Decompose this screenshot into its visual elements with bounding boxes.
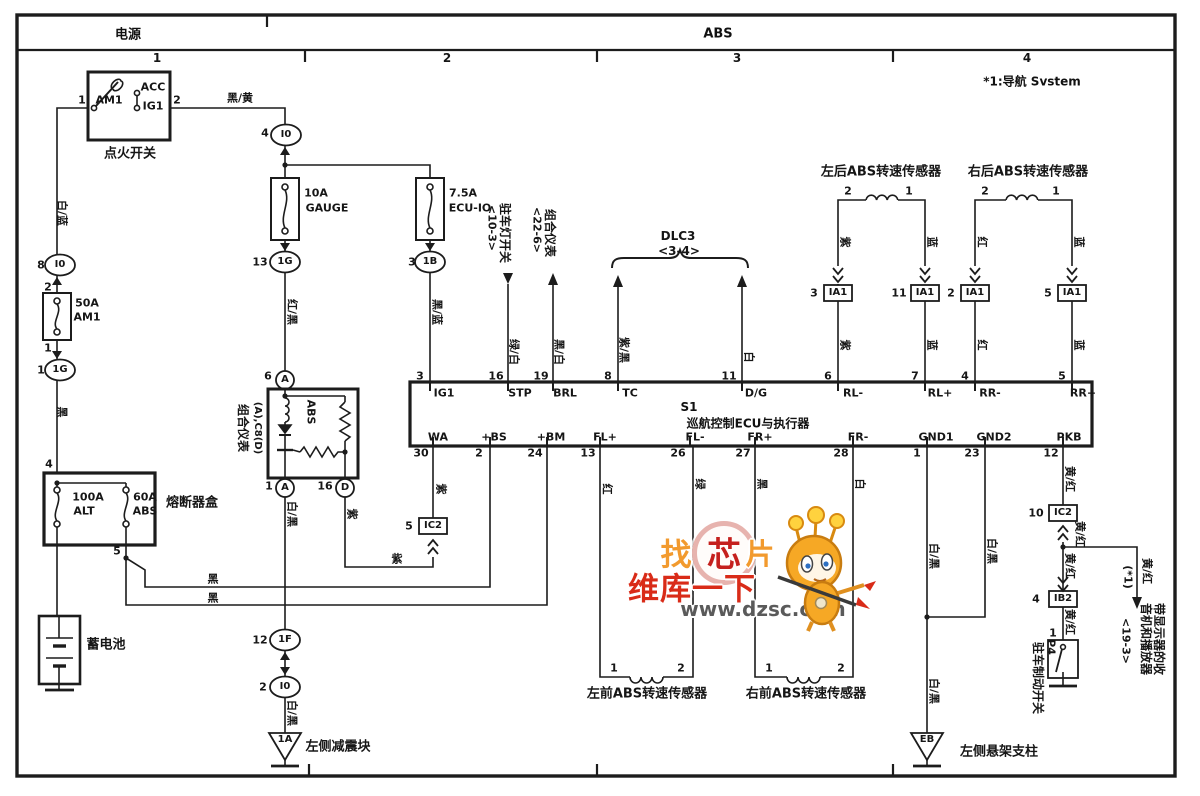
pin-number: 1	[44, 343, 52, 354]
wire-color-label: 白/蓝	[57, 200, 68, 226]
wire-color-label: 白	[744, 352, 755, 363]
pin-number: 1	[1049, 628, 1057, 639]
pin-number: 4	[261, 128, 269, 139]
connector-label: IB2	[1054, 594, 1072, 604]
pin-number: 2	[259, 682, 267, 693]
wire-color-label: 蓝	[1074, 237, 1085, 248]
wire-color-label: 白/黑	[287, 700, 298, 726]
pin-number: 23	[964, 448, 979, 459]
wire-color-label: 蓝	[1074, 340, 1085, 351]
pin-number: 5	[1044, 288, 1052, 299]
fuse-label: 50A	[75, 298, 99, 309]
wire-color-label: 蓝	[927, 340, 938, 351]
dest-label: 带显示器的收	[1153, 603, 1165, 675]
lamp-label: ABS	[306, 400, 317, 425]
column-number: 1	[153, 52, 161, 64]
dest-label: 组合仪表	[544, 209, 556, 257]
ecu-pin-label: WA	[428, 432, 448, 443]
ground-id: 1A	[278, 735, 293, 745]
connector-label: IA1	[916, 288, 934, 298]
pin-number: 12	[1043, 448, 1058, 459]
pin-number: 12	[252, 635, 267, 646]
wire-color-label: 红	[977, 340, 988, 351]
dest-ref: <3-4>	[658, 245, 700, 257]
pin-number: 30	[413, 448, 428, 459]
connector-label: IA1	[829, 288, 847, 298]
wire-color-label: 绿	[695, 479, 706, 490]
connector-label: D	[341, 483, 349, 493]
connector-label: I0	[281, 130, 292, 140]
pin-number: 2	[981, 186, 989, 197]
connector-label: A	[281, 483, 289, 493]
wire-color-label: 紫	[840, 237, 851, 248]
component-label: (A),C8(D)	[252, 402, 262, 454]
pin-number: 1	[78, 95, 86, 106]
system-section-title: ABS	[703, 27, 732, 42]
pin-number: 7	[911, 371, 919, 382]
pin-number: 3	[408, 257, 416, 268]
column-number: 4	[1023, 52, 1031, 64]
connector-label: 1B	[423, 257, 438, 267]
ecu-pin-label: D/G	[745, 388, 767, 399]
navigation-note: *1:导航 Svstem	[983, 73, 1081, 90]
component-label: 右前ABS转速传感器	[746, 688, 866, 701]
wire-color-label: 黄/红	[1065, 609, 1076, 635]
pin-number: 8	[37, 260, 45, 271]
pin-number: 1	[913, 448, 921, 459]
fuse-label: 7.5A	[449, 188, 477, 199]
wire-color-label: 黑	[57, 407, 68, 418]
wire-color-label: 红	[602, 484, 613, 495]
component-label: 左后ABS转速传感器	[821, 166, 941, 179]
power-section-title: 电源	[115, 24, 141, 43]
connector-label: I0	[55, 260, 66, 270]
dest-ref: <22-6>	[532, 207, 543, 253]
dest-label: 音机和播放器	[1140, 603, 1152, 675]
pin-number: 2	[677, 663, 685, 674]
ground-id: EB	[920, 735, 934, 745]
ecu-name: 巡航控制ECU与执行器	[687, 415, 810, 432]
wire-color-label: 黄/红	[1142, 558, 1153, 584]
wire-color-label: 黑/黄	[227, 93, 253, 104]
wire-color-label: 紫/黑	[619, 337, 630, 363]
fuse-label: AM1	[73, 312, 100, 323]
ecu-pin-label: RR-	[979, 388, 1001, 399]
component-label: 熔断器盒	[166, 497, 218, 510]
fuse-label: 60A	[133, 492, 157, 503]
pin-number: 10	[1028, 508, 1043, 519]
circuit-linework	[0, 0, 1200, 796]
pin-number: 1	[1052, 186, 1060, 197]
pin-number: 2	[173, 95, 181, 106]
column-number: 3	[733, 52, 741, 64]
ecu-pin-label: STP	[508, 388, 532, 399]
fuse-label: 100A	[72, 492, 103, 503]
pin-number: 28	[833, 448, 848, 459]
pin-number: 2	[44, 282, 52, 293]
fuse-label: ABS	[133, 506, 158, 517]
pin-number: 16	[317, 481, 332, 492]
wire-color-label: 紫	[436, 484, 447, 495]
component-label: 左侧减震块	[305, 741, 370, 754]
wire-color-label: 白/黑	[287, 501, 298, 527]
column-number: 2	[443, 52, 451, 64]
ecu-pin-label: GND1	[918, 432, 953, 443]
pin-number: 24	[527, 448, 542, 459]
pin-number: 26	[670, 448, 685, 459]
dest-label: 驻车灯开关	[499, 203, 511, 263]
component-label: 蓄电池	[86, 639, 125, 652]
wire-color-label: 红	[977, 237, 988, 248]
pin-number: 4	[1032, 594, 1040, 605]
note-ref: (*1)	[1123, 565, 1134, 588]
sensor-coil	[866, 195, 898, 200]
fuse-label: 10A	[304, 188, 328, 199]
pin-number: 16	[488, 371, 503, 382]
terminal-label: IG1	[143, 101, 164, 112]
connector-label: A	[281, 375, 289, 385]
wire-color-label: 白/黑	[929, 543, 940, 569]
ecu-pin-label: TC	[622, 388, 638, 399]
component-label: 组合仪表	[237, 404, 249, 452]
wire-color-label: 黑	[757, 479, 768, 490]
pin-number: 11	[891, 288, 906, 299]
pin-number: 19	[533, 371, 548, 382]
pin-number: 4	[961, 371, 969, 382]
ecu-pin-label: +BS	[481, 432, 507, 443]
pin-number: 6	[824, 371, 832, 382]
wire-color-label: 黄/红	[1065, 466, 1076, 492]
component-label: 点火开关	[104, 148, 156, 161]
ecu-pin-label: FL-	[685, 432, 704, 443]
component-id: P4	[1046, 639, 1057, 655]
connector-label: IC2	[1054, 508, 1072, 518]
connector-label: I0	[280, 682, 291, 692]
wire-color-label: 红/黑	[287, 299, 298, 325]
wire-color-label: 黑	[208, 593, 219, 604]
pin-number: 2	[475, 448, 483, 459]
wire-color-label: 紫	[347, 509, 358, 520]
wire-color-label: 紫	[840, 340, 851, 351]
ecu-pin-label: +BM	[537, 432, 566, 443]
pin-number: 3	[810, 288, 818, 299]
ecu-pin-label: IG1	[434, 388, 455, 399]
connector-label: 1F	[278, 635, 292, 645]
wire-color-label: 绿/白	[509, 339, 520, 365]
component-label: 左前ABS转速传感器	[587, 688, 707, 701]
ecu-pin-label: FL+	[593, 432, 617, 443]
pin-number: 13	[580, 448, 595, 459]
pin-number: 11	[721, 371, 736, 382]
pin-number: 13	[252, 257, 267, 268]
dest-ref: <19-3>	[1121, 618, 1132, 664]
ecu-pin-label: RL-	[843, 388, 863, 399]
ecu-pin-label: FR-	[848, 432, 869, 443]
wire-color-label: 蓝	[927, 237, 938, 248]
pin-number: 1	[265, 481, 273, 492]
wire-color-label: 黑/蓝	[432, 299, 443, 325]
pin-number: 5	[113, 546, 121, 557]
abs-lamp-coil	[285, 398, 289, 422]
connector-label: IA1	[1063, 288, 1081, 298]
pin-number: 2	[844, 186, 852, 197]
connector-label: 1G	[52, 365, 67, 375]
dest-label: DLC3	[661, 230, 696, 242]
connector-label: IC2	[424, 521, 442, 531]
fuse-label: GAUGE	[306, 203, 349, 214]
ecu-pin-label: PKB	[1057, 432, 1082, 443]
pin-number: 2	[837, 663, 845, 674]
ecu-pin-label: FR+	[747, 432, 772, 443]
dest-ref: <10-3>	[487, 205, 498, 251]
wire-color-label: 黄/红	[1065, 553, 1076, 579]
pin-number: 5	[1058, 371, 1066, 382]
component-label: 左侧悬架支柱	[960, 746, 1038, 759]
pin-number: 8	[604, 371, 612, 382]
pin-number: 5	[405, 521, 413, 532]
terminal-label: ACC	[141, 82, 166, 93]
wiring-diagram-page: 电源 ABS *1:导航 Svstem S1 巡航控制ECU与执行器 点火开关A…	[0, 0, 1200, 796]
component-label: 右后ABS转速传感器	[968, 166, 1088, 179]
diagram-border	[17, 15, 1175, 776]
wire-color-label: 黑/白	[554, 339, 565, 365]
wire-color-label: 黑	[208, 574, 219, 585]
terminal-label: AM1	[95, 95, 122, 106]
wire-color-label: 白	[855, 479, 866, 490]
ecu-id: S1	[681, 400, 698, 414]
pin-number: 3	[416, 371, 424, 382]
wire-color-label: 紫	[392, 554, 403, 565]
pin-number: 1	[765, 663, 773, 674]
ecu-pin-label: RR+	[1070, 388, 1096, 399]
wire-color-label: 白/黑	[987, 538, 998, 564]
pin-number: 4	[45, 459, 53, 470]
connector-label: 1G	[277, 257, 292, 267]
fuse-label: ALT	[73, 506, 94, 517]
pin-number: 1	[37, 365, 45, 376]
component-label: 驻车制动开关	[1032, 642, 1044, 714]
pin-number: 1	[905, 186, 913, 197]
pin-number: 1	[610, 663, 618, 674]
connector-label: IA1	[966, 288, 984, 298]
ecu-pin-label: GND2	[976, 432, 1011, 443]
wire-color-label: 黄/红	[1075, 521, 1086, 547]
ecu-pin-label: BRL	[553, 388, 577, 399]
pin-number: 6	[264, 371, 272, 382]
ecu-pin-label: RL+	[928, 388, 953, 399]
pin-number: 2	[947, 288, 955, 299]
wire-color-label: 白/黑	[929, 678, 940, 704]
pin-number: 27	[735, 448, 750, 459]
